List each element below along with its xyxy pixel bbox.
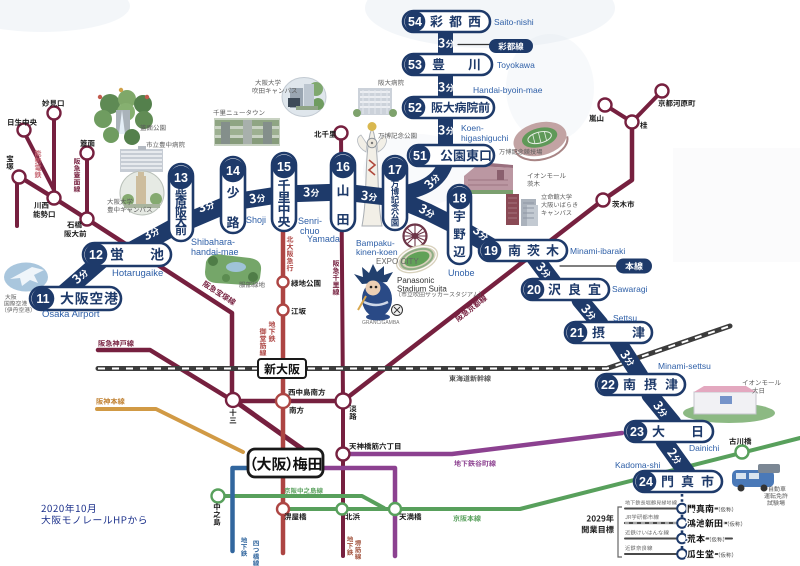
- svg-text:11: 11: [36, 292, 49, 306]
- svg-text:Koen-: Koen-: [461, 123, 484, 133]
- svg-text:52: 52: [408, 101, 422, 115]
- svg-text:Shoji: Shoji: [246, 215, 266, 225]
- svg-text:handai-mae: handai-mae: [191, 247, 239, 257]
- svg-text:Yamada: Yamada: [307, 234, 340, 244]
- svg-text:54: 54: [408, 15, 422, 29]
- svg-text:Toyokawa: Toyokawa: [497, 60, 535, 70]
- svg-text:Saito-nishi: Saito-nishi: [494, 17, 534, 27]
- svg-text:Dainichi: Dainichi: [689, 443, 719, 453]
- svg-text:20: 20: [527, 283, 541, 297]
- svg-text:23: 23: [630, 425, 644, 439]
- svg-text:Handai-byoin-mae: Handai-byoin-mae: [473, 85, 543, 95]
- svg-text:Shibahara-: Shibahara-: [191, 237, 235, 247]
- svg-text:EXPO CITY: EXPO CITY: [376, 257, 419, 266]
- svg-text:22: 22: [601, 378, 615, 392]
- svg-text:51: 51: [413, 149, 427, 163]
- svg-text:14: 14: [226, 164, 240, 178]
- svg-text:15: 15: [277, 160, 291, 174]
- svg-text:kinen-koen: kinen-koen: [356, 247, 398, 257]
- svg-text:Hotarugaike: Hotarugaike: [112, 268, 163, 279]
- svg-text:18: 18: [453, 191, 467, 205]
- svg-text:Senri-: Senri-: [298, 216, 322, 226]
- svg-text:Unobe: Unobe: [448, 268, 475, 278]
- svg-text:21: 21: [570, 326, 584, 340]
- svg-text:higashiguchi: higashiguchi: [461, 133, 508, 143]
- svg-text:24: 24: [639, 475, 653, 489]
- svg-text:17: 17: [388, 163, 402, 177]
- svg-text:Sawaragi: Sawaragi: [612, 284, 648, 294]
- svg-text:53: 53: [408, 58, 422, 72]
- svg-text:13: 13: [174, 171, 188, 185]
- svg-text:Settsu: Settsu: [613, 313, 637, 323]
- svg-text:GRANC/GAMBA: GRANC/GAMBA: [362, 320, 400, 326]
- svg-text:Minami-settsu: Minami-settsu: [658, 361, 711, 371]
- svg-text:12: 12: [89, 248, 103, 262]
- svg-text:Osaka Airport: Osaka Airport: [42, 309, 100, 320]
- svg-text:16: 16: [336, 160, 350, 174]
- svg-text:19: 19: [484, 244, 498, 258]
- svg-text:Minami-ibaraki: Minami-ibaraki: [570, 246, 625, 256]
- svg-text:Kadoma-shi: Kadoma-shi: [615, 460, 660, 470]
